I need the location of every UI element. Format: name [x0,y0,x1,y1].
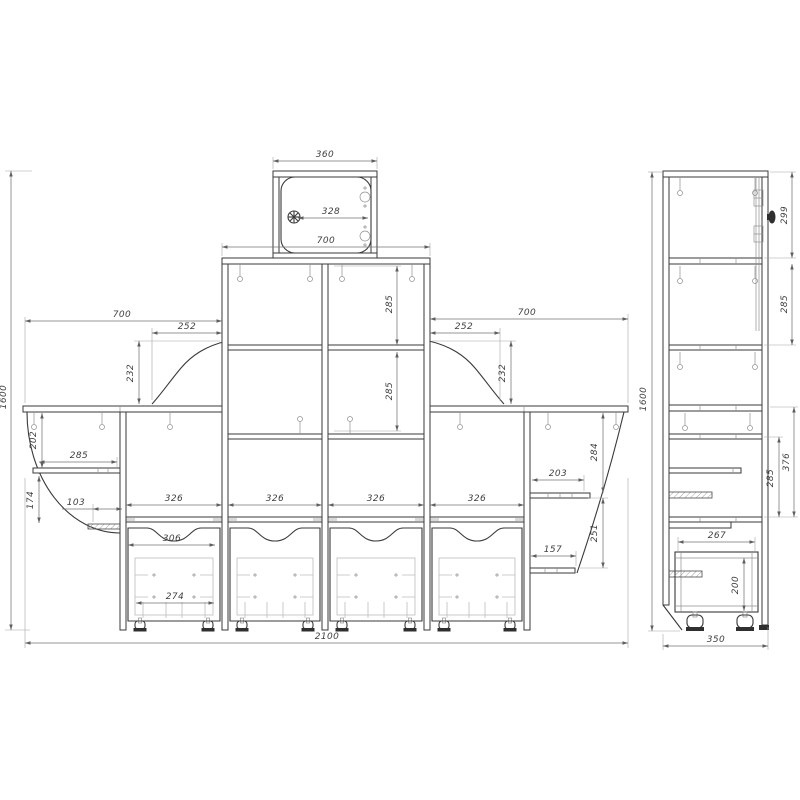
dim-left-shelf2-drop: 174 [26,491,36,509]
dim-side-drawer-depth: 267 [708,531,726,541]
right-wing-shelf-2 [530,568,575,573]
wing-shelf-profile-4 [666,571,702,577]
dim-right-wing-width: 700 [518,308,536,318]
side-view: 1600 299 285 376 285 267 200 [639,171,798,650]
dim-bay3-width: 326 [367,494,385,504]
side-structure [663,171,776,631]
caster-icons [438,618,517,632]
hinge-icons [360,186,370,247]
dim-overall-height: 1600 [0,385,9,410]
drawer-bay-2 [230,528,320,632]
tower-right-panel [424,258,430,630]
left-wing-shelf-2 [88,524,120,529]
door-knob-icon [288,211,300,223]
dim-left-shelf2-width: 103 [67,498,85,508]
caster-icons [336,618,417,632]
side-caster-icons [686,612,754,631]
side-drawer [675,552,758,612]
side-top-board [663,171,768,177]
wing-shelf-profile-2 [666,492,712,498]
dim-left-corbel-width: 252 [178,322,196,332]
dim-tower-width: 700 [317,236,335,246]
dim-left-shelf1-width: 285 [70,451,88,461]
side-left-panel [663,177,669,605]
dim-tower-lower-cell: 285 [385,382,395,400]
dim-overall-width: 2100 [315,632,340,642]
dim-side-top-section: 299 [780,206,790,224]
dim-right-corbel-width: 252 [455,322,473,332]
dim-drawer-outer-width: 306 [163,534,181,544]
base-left-divider [120,412,126,630]
dim-top-cabinet-width: 360 [316,150,334,160]
drawer-bay-4 [432,528,522,632]
wing-shelf-profile-3 [669,522,731,528]
side-right-panel [762,177,768,625]
dim-side-overall-height: 1600 [639,387,649,412]
right-corbel-bracket [429,341,504,404]
dim-right-shelf2-width: 157 [544,545,562,555]
left-desk-top [23,406,222,412]
dim-side-lower-section: 376 [782,453,792,471]
dim-side-depth: 350 [707,635,725,645]
front-view: 360 328 700 285 285 700 252 232 [0,150,628,648]
dim-side-lower-shelf: 285 [766,469,776,487]
caster-icons [236,618,315,632]
dim-tower-upper-cell: 285 [385,295,395,313]
dim-left-corbel-height: 232 [126,364,136,382]
left-corbel-bracket [152,341,227,404]
dim-right-shelf1-drop: 284 [590,443,600,461]
dim-right-shelf2-drop: 251 [590,524,600,542]
tower-center-divider [322,264,328,630]
dim-right-corbel-height: 232 [498,364,508,382]
tower-left-panel [222,258,228,630]
caster-icons [134,618,215,632]
dim-drawer-handle-width: 274 [166,592,184,602]
dim-left-shelf1-drop: 202 [29,431,39,449]
right-desk-top [430,406,628,412]
side-dowel-marks [678,178,758,431]
dim-door-width: 328 [322,207,340,217]
dim-side-upper-shelf: 285 [780,295,790,313]
dim-left-wing-width: 700 [113,310,131,320]
left-wing-shelf-1 [33,468,120,473]
furniture-technical-drawing: 360 328 700 285 285 700 252 232 [0,0,800,800]
dim-bay4-width: 326 [468,494,486,504]
drawer-bay-3 [330,528,422,632]
dim-right-shelf1-width: 203 [549,469,567,479]
base-right-divider [524,412,530,630]
dim-side-drawer-height: 200 [731,576,741,594]
wing-shelf-profile-1 [669,468,741,473]
dim-bay1-width: 326 [165,494,183,504]
dim-bay2-width: 326 [266,494,284,504]
tower-top-board [222,258,430,264]
